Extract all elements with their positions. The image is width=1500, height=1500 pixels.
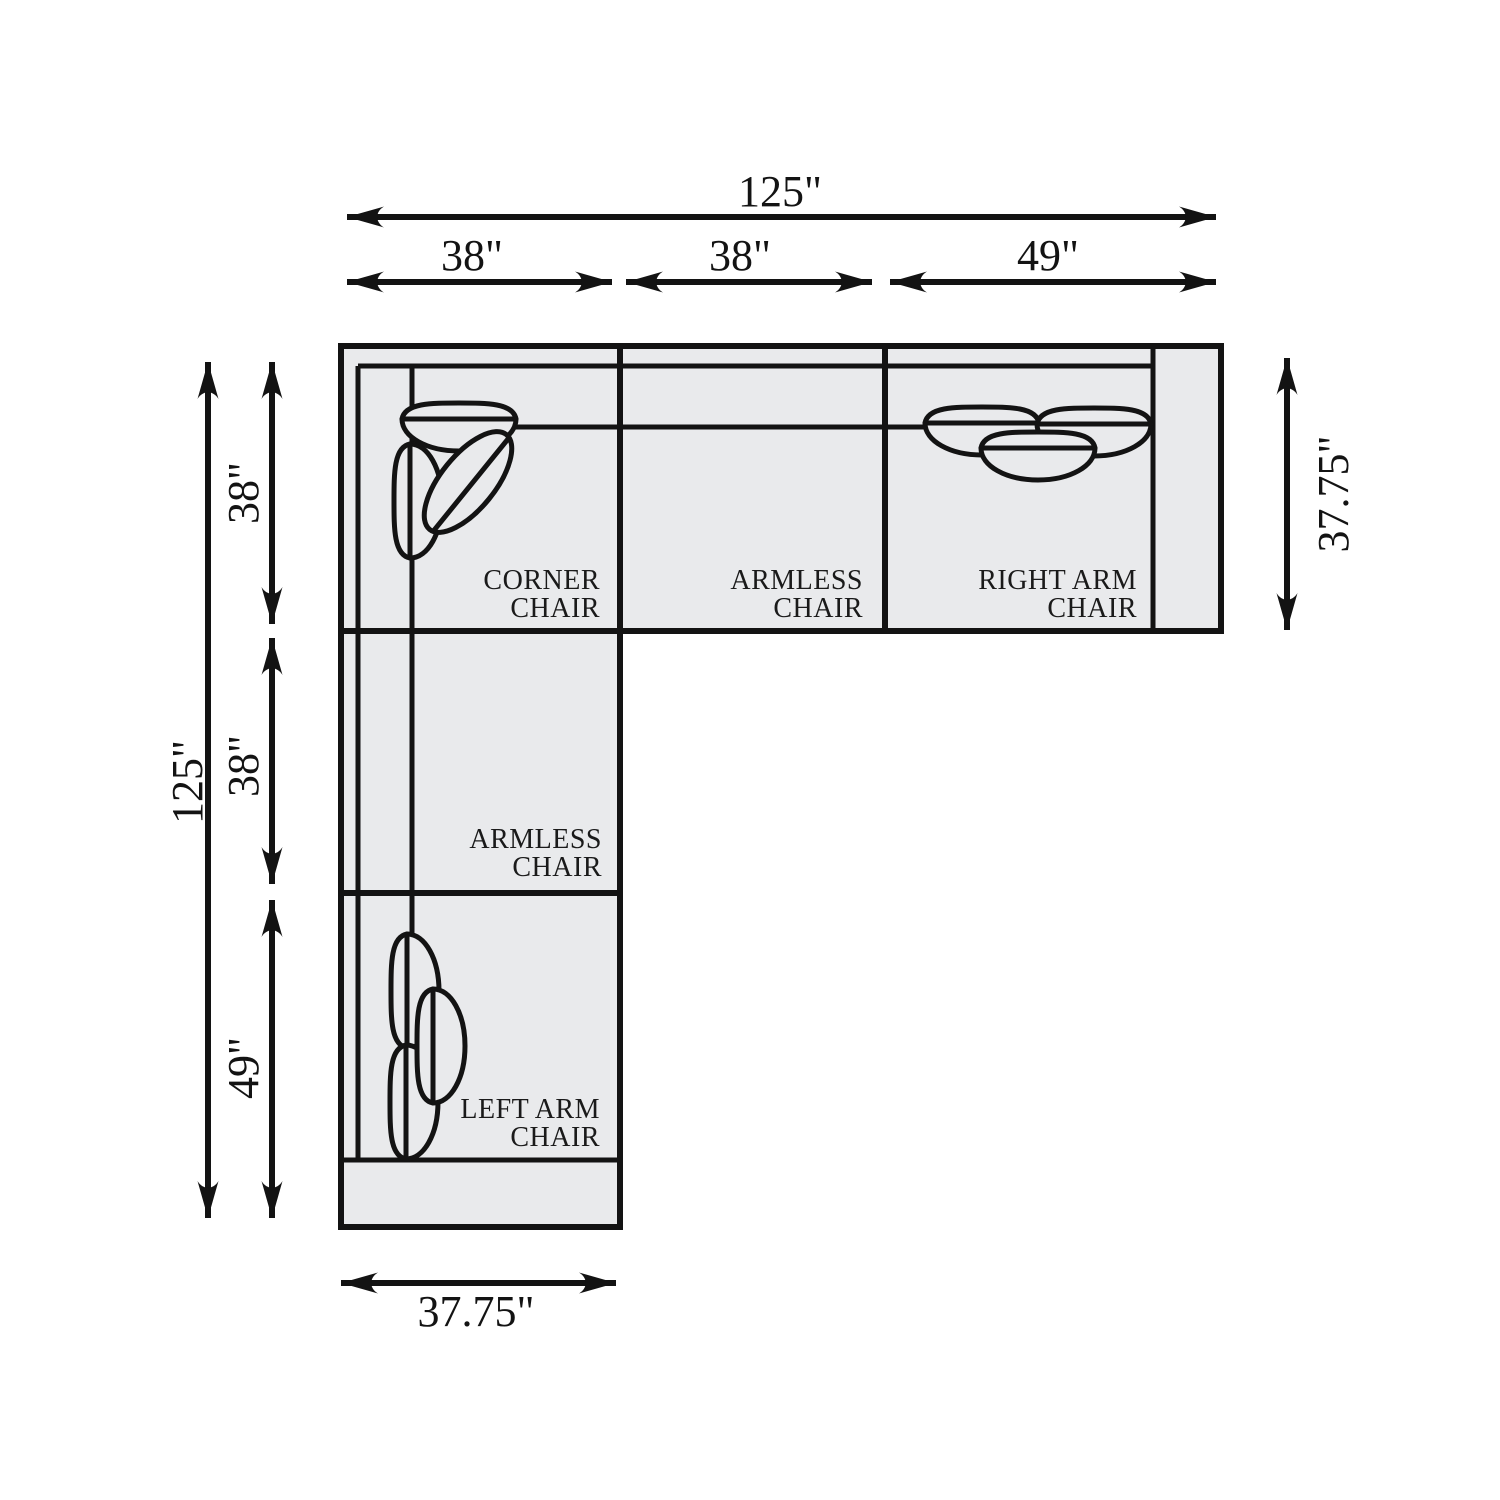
dim-text-left-seg2: 38" xyxy=(219,735,268,797)
dim-text-top-seg2: 38" xyxy=(709,231,771,280)
dim-text-right-depth: 37.75" xyxy=(1309,436,1358,553)
label-left-arm-line2: CHAIR xyxy=(510,1122,600,1153)
label-corner-chair-line2: CHAIR xyxy=(510,593,600,624)
dim-text-bottom-depth: 37.75" xyxy=(418,1287,535,1336)
label-right-arm-line2: CHAIR xyxy=(1047,593,1137,624)
dim-text-top-total: 125" xyxy=(738,167,822,216)
label-armless-top-line2: CHAIR xyxy=(773,593,863,624)
dim-text-left-total: 125" xyxy=(163,740,212,824)
leftarm-pillow-middle xyxy=(417,989,465,1103)
dim-text-top-seg1: 38" xyxy=(441,231,503,280)
label-right-arm-line1: RIGHT ARM xyxy=(978,565,1137,596)
dim-text-left-seg1: 38" xyxy=(219,462,268,524)
dim-text-left-seg3: 49" xyxy=(219,1037,268,1099)
label-armless-left-line2: CHAIR xyxy=(512,852,602,883)
label-armless-top-line1: ARMLESS xyxy=(730,565,863,596)
label-left-arm-line1: LEFT ARM xyxy=(460,1094,600,1125)
label-armless-left-line1: ARMLESS xyxy=(469,824,602,855)
sectional-floorplan-diagram: CORNER CHAIR ARMLESS CHAIR RIGHT ARM CHA… xyxy=(0,0,1500,1500)
label-corner-chair-line1: CORNER xyxy=(483,565,600,596)
rightarm-pillow-front xyxy=(981,432,1095,480)
dim-text-top-seg3: 49" xyxy=(1017,231,1079,280)
